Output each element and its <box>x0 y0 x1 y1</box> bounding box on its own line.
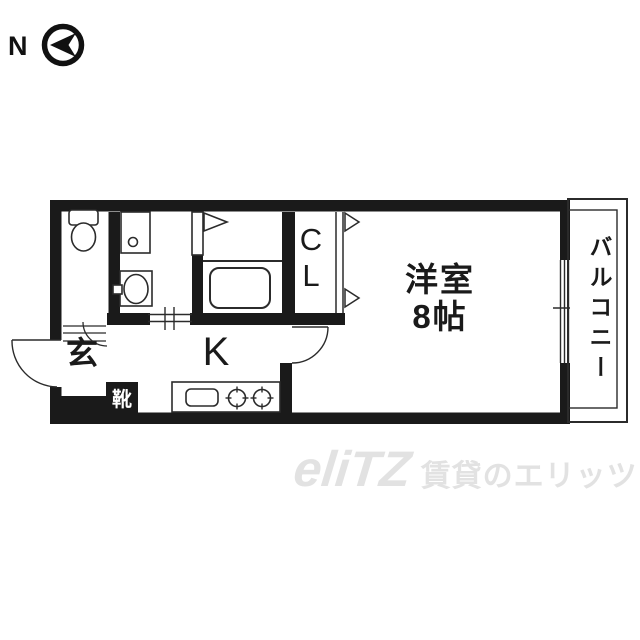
closet-door-icon <box>336 212 359 313</box>
bath-door-icon <box>192 212 227 255</box>
toilet-icon <box>69 210 98 251</box>
floor-plan-page: N <box>0 0 640 640</box>
bathtub-icon <box>210 268 270 308</box>
kitchen-label: K <box>194 330 238 375</box>
closet-label: C L <box>292 222 330 294</box>
compass-icon <box>45 27 82 64</box>
shoe-cabinet-label: 靴 <box>106 389 138 411</box>
entrance-label: 玄 <box>62 336 102 372</box>
floor-plan-drawing <box>0 0 640 640</box>
watermark-logo: eliTZ <box>291 444 413 494</box>
watermark: eliTZ 賃貸のエリッツ <box>294 444 638 494</box>
watermark-text: 賃貸のエリッツ <box>421 462 638 492</box>
room-door-arc <box>292 327 328 363</box>
washer-pan-icon <box>121 212 150 253</box>
balcony-label: バルコニー <box>582 235 616 405</box>
western-room-label: 洋室 8帖 <box>370 262 510 336</box>
kitchen-counter-icon <box>172 382 280 412</box>
sink-icon <box>186 389 218 406</box>
washroom-door-icon <box>148 307 192 330</box>
entrance-door-arc <box>12 340 61 387</box>
